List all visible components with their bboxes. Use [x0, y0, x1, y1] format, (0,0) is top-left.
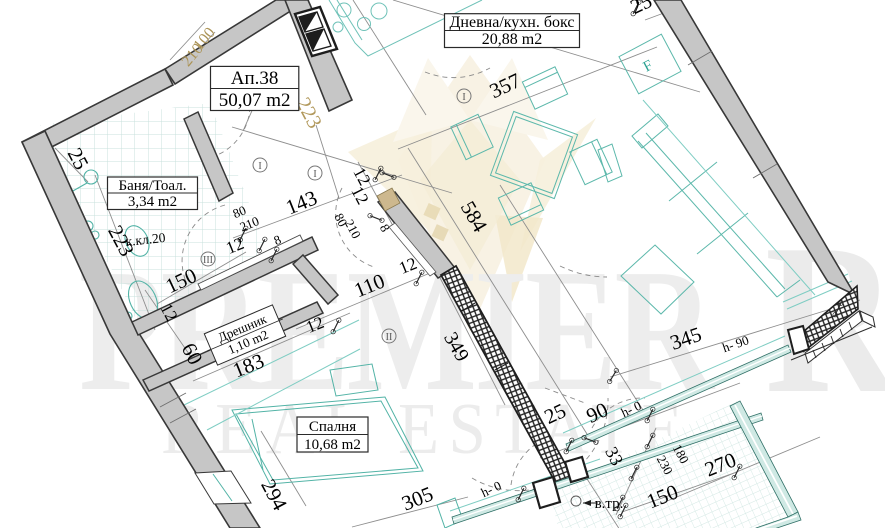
svg-text:Ап.38: Ап.38 [231, 68, 279, 89]
svg-text:II: II [386, 332, 393, 343]
svg-text:20,88 m2: 20,88 m2 [482, 31, 542, 48]
svg-text:I: I [462, 92, 465, 103]
svg-text:I: I [313, 169, 316, 180]
svg-text:I: I [258, 161, 261, 172]
svg-text:в.тр.: в.тр. [595, 496, 624, 512]
svg-text:3,34 m2: 3,34 m2 [128, 194, 177, 210]
svg-text:Дневна/кухн. бокс: Дневна/кухн. бокс [450, 14, 575, 31]
svg-text:Баня/Тоал.: Баня/Тоал. [119, 178, 187, 194]
svg-text:50,07 m2: 50,07 m2 [219, 90, 291, 111]
svg-text:Спалня: Спалня [309, 419, 356, 435]
svg-text:10,68 m2: 10,68 m2 [304, 437, 361, 453]
svg-text:III: III [203, 255, 213, 266]
